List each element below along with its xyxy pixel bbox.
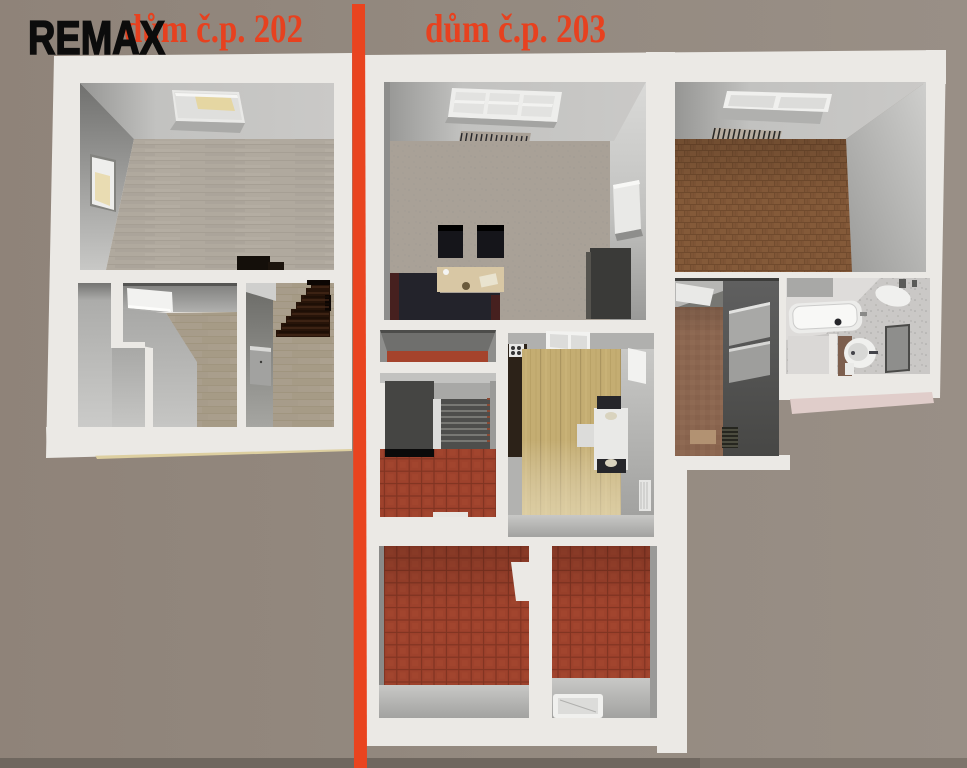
svg-text:REMAX: REMAX — [28, 11, 165, 64]
svg-text:dům č.p. 203: dům č.p. 203 — [425, 6, 606, 51]
